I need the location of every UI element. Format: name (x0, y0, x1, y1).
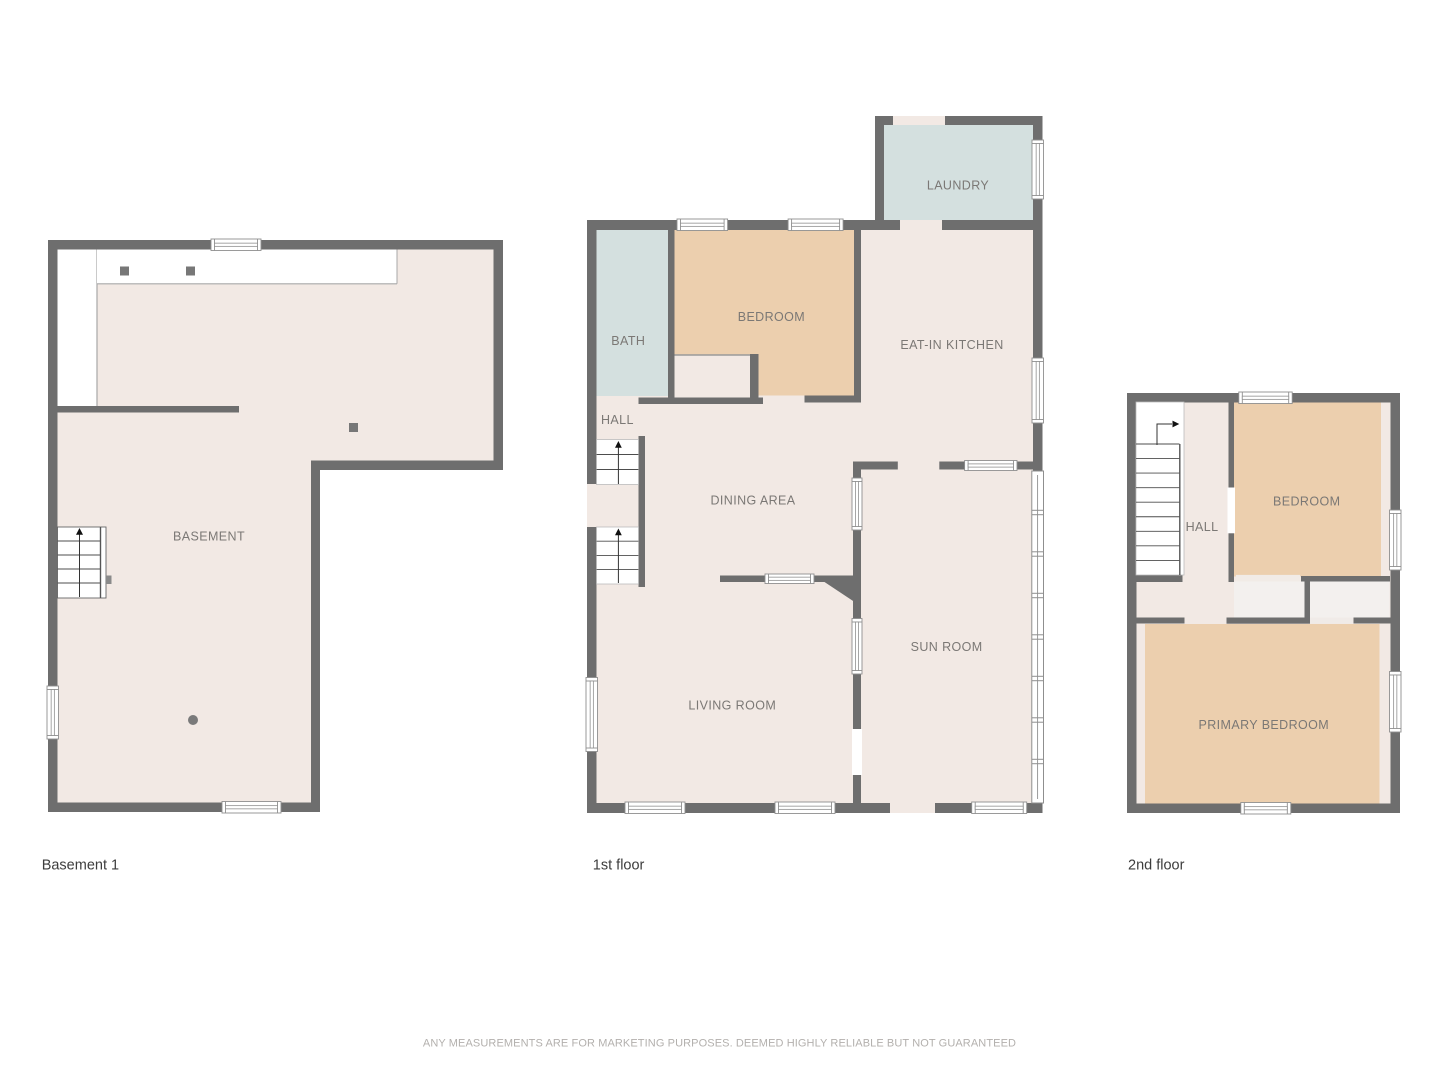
svg-text:2nd floor: 2nd floor (1128, 857, 1185, 873)
svg-text:HALL: HALL (601, 413, 634, 427)
svg-text:HALL: HALL (1186, 520, 1219, 534)
svg-text:BEDROOM: BEDROOM (738, 310, 805, 324)
svg-text:DINING AREA: DINING AREA (711, 494, 796, 508)
svg-text:LAUNDRY: LAUNDRY (927, 179, 990, 193)
svg-text:BATH: BATH (611, 334, 645, 348)
svg-text:SUN ROOM: SUN ROOM (911, 640, 983, 654)
svg-text:LIVING ROOM: LIVING ROOM (688, 698, 776, 712)
svg-text:BASEMENT: BASEMENT (173, 530, 245, 544)
svg-text:PRIMARY BEDROOM: PRIMARY BEDROOM (1199, 718, 1330, 732)
svg-text:ANY MEASUREMENTS ARE FOR MARKE: ANY MEASUREMENTS ARE FOR MARKETING PURPO… (423, 1038, 1016, 1050)
svg-text:Basement 1: Basement 1 (42, 857, 119, 873)
svg-text:EAT-IN KITCHEN: EAT-IN KITCHEN (900, 338, 1003, 352)
svg-text:BEDROOM: BEDROOM (1273, 494, 1340, 508)
svg-text:1st floor: 1st floor (593, 857, 645, 873)
